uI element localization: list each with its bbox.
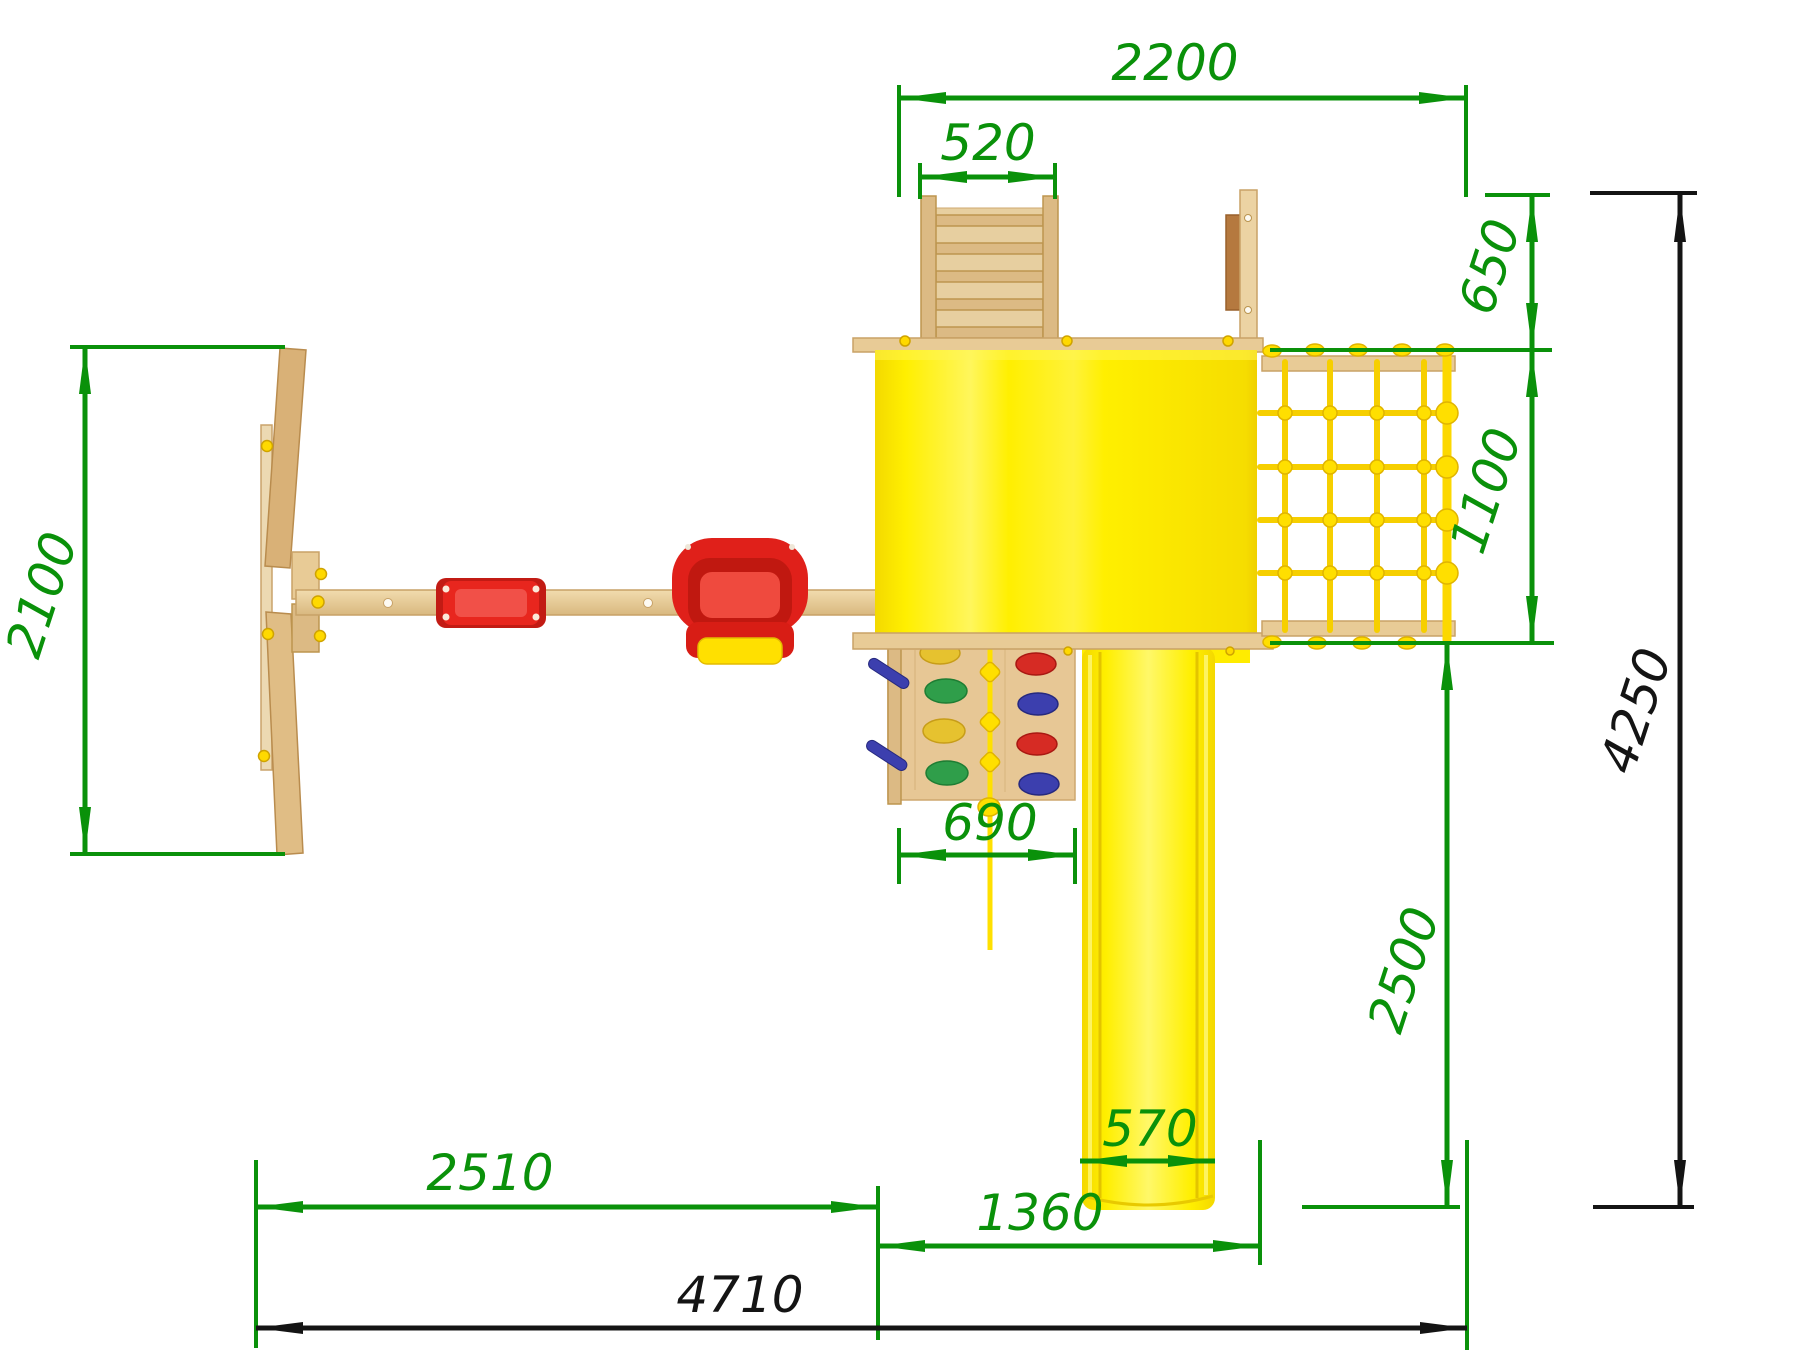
dim-value-4250: 4250 [1589,641,1683,780]
climbing-wall-rail [888,640,901,804]
beam-hole [644,599,653,608]
bolt [259,751,270,762]
dim-slide-run-depth: 2500 [1302,643,1460,1207]
access-ladder [921,196,1058,342]
swing-bolt-hole [443,586,450,593]
dim-value-690: 690 [942,794,1037,852]
playground-top-view-drawing: 2200 520 650 1100 2100 [0,0,1800,1353]
swing-bolt-hole [443,614,450,621]
baby-swing-seat [672,538,808,664]
bolt-hole [1245,215,1252,222]
cap-bolt [900,336,910,346]
climbing-hold-blue [1019,773,1059,795]
cap-bolt [1062,336,1072,346]
roof-top-sheen [875,350,1257,360]
dim-value-1360: 1360 [976,1184,1103,1242]
dim-ladder-width: 520 [920,114,1055,199]
climbing-hold-green [926,761,968,785]
bolt [789,544,795,550]
bolt [685,544,691,550]
ladder-rail-left [921,196,936,342]
tower-frame-top-bar [853,338,1263,352]
swing-bolt-hole [533,614,540,621]
dim-balcony-depth: 650 [1270,195,1552,350]
tower-platform [853,190,1273,655]
swing-bolt-hole [533,586,540,593]
dim-swing-frame-depth: 2100 [0,347,285,854]
cap-bolt [1064,647,1072,655]
dim-value-520: 520 [940,114,1035,172]
dim-value-570: 570 [1102,1100,1197,1158]
ladder-rung [936,215,1043,226]
climbing-hold-green [925,679,967,703]
beam-hole [384,599,393,608]
dim-swing-section-width: 2510 [256,1144,878,1207]
dim-value-2200: 2200 [1111,34,1238,92]
dim-value-2100: 2100 [0,525,89,664]
tower-frame-bottom-bar [853,633,1273,649]
climbing-hold-red [1017,733,1057,755]
baby-swing-base [698,638,782,664]
ladder-rung [936,243,1043,254]
dim-overall-depth: 4250 [1589,193,1697,1207]
bolt [316,569,327,580]
bolt-hole [1245,307,1252,314]
bolt [262,441,273,452]
dim-value-650: 650 [1448,212,1533,321]
bolt [315,631,326,642]
climbing-net [1260,344,1458,649]
climbing-hold-red [1016,653,1056,675]
cap-bolt [1223,336,1233,346]
ladder-rung [936,327,1043,338]
dim-overall-width: 4710 [256,1266,1467,1328]
bolt [263,629,274,640]
ladder-rail-right [1043,196,1058,342]
ladder-rung [936,299,1043,310]
bolt [312,596,324,608]
climbing-hold-blue [1018,693,1058,715]
baby-swing-cushion [700,572,780,618]
dim-value-4710: 4710 [676,1266,803,1324]
ladder-rung [936,271,1043,282]
drawing-canvas: 2200 520 650 1100 2100 [0,0,1800,1353]
tower-roof-yellow [875,350,1257,637]
net-knots [1278,402,1458,584]
dim-net-depth: 1100 [1270,350,1554,643]
cap-bolt [1226,647,1234,655]
dim-climbing-wall-width: 690 [899,794,1075,884]
flat-swing-highlight [455,589,527,617]
dimension-layer: 2200 520 650 1100 2100 [0,34,1697,1350]
climbing-hold-yellow [923,719,965,743]
dim-value-1100: 1100 [1439,421,1533,560]
dim-value-2500: 2500 [1357,900,1451,1039]
dim-value-2510: 2510 [426,1144,553,1202]
flat-swing-seat [436,578,546,628]
